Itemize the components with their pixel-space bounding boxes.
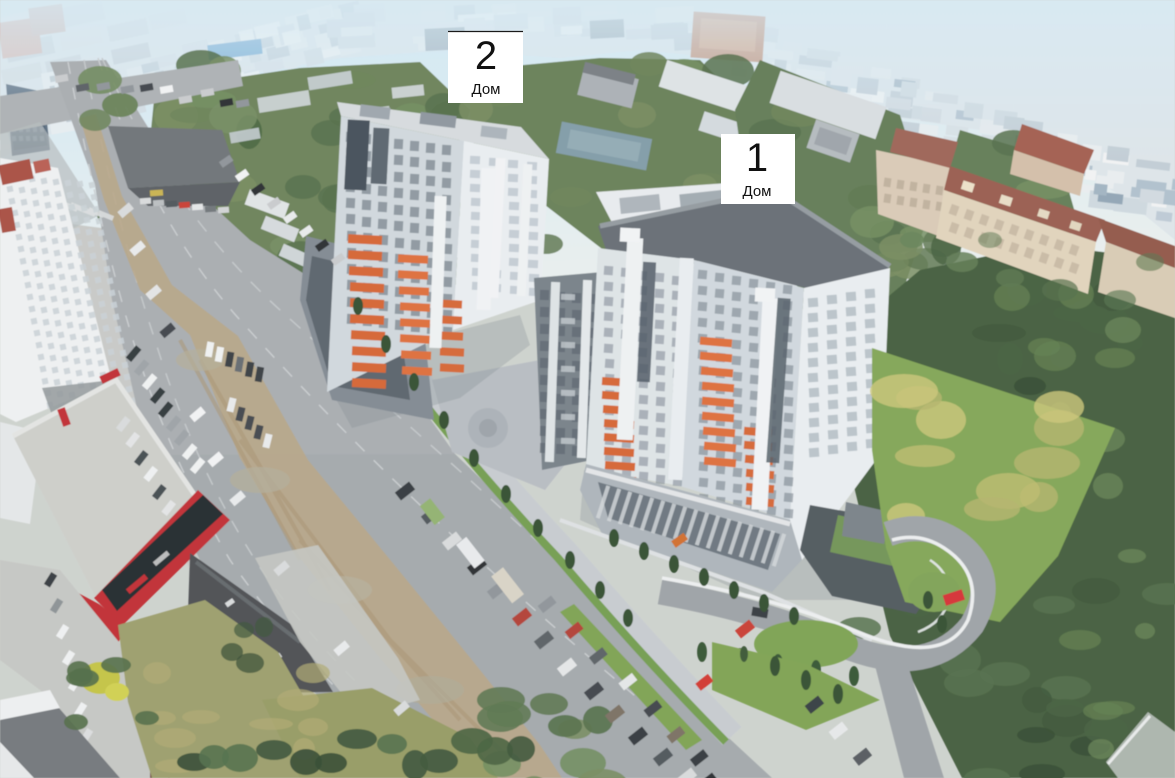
svg-text:2: 2 xyxy=(475,34,497,78)
svg-text:1: 1 xyxy=(746,136,768,180)
svg-text:Дом: Дом xyxy=(743,183,772,200)
svg-text:Дом: Дом xyxy=(472,81,501,98)
